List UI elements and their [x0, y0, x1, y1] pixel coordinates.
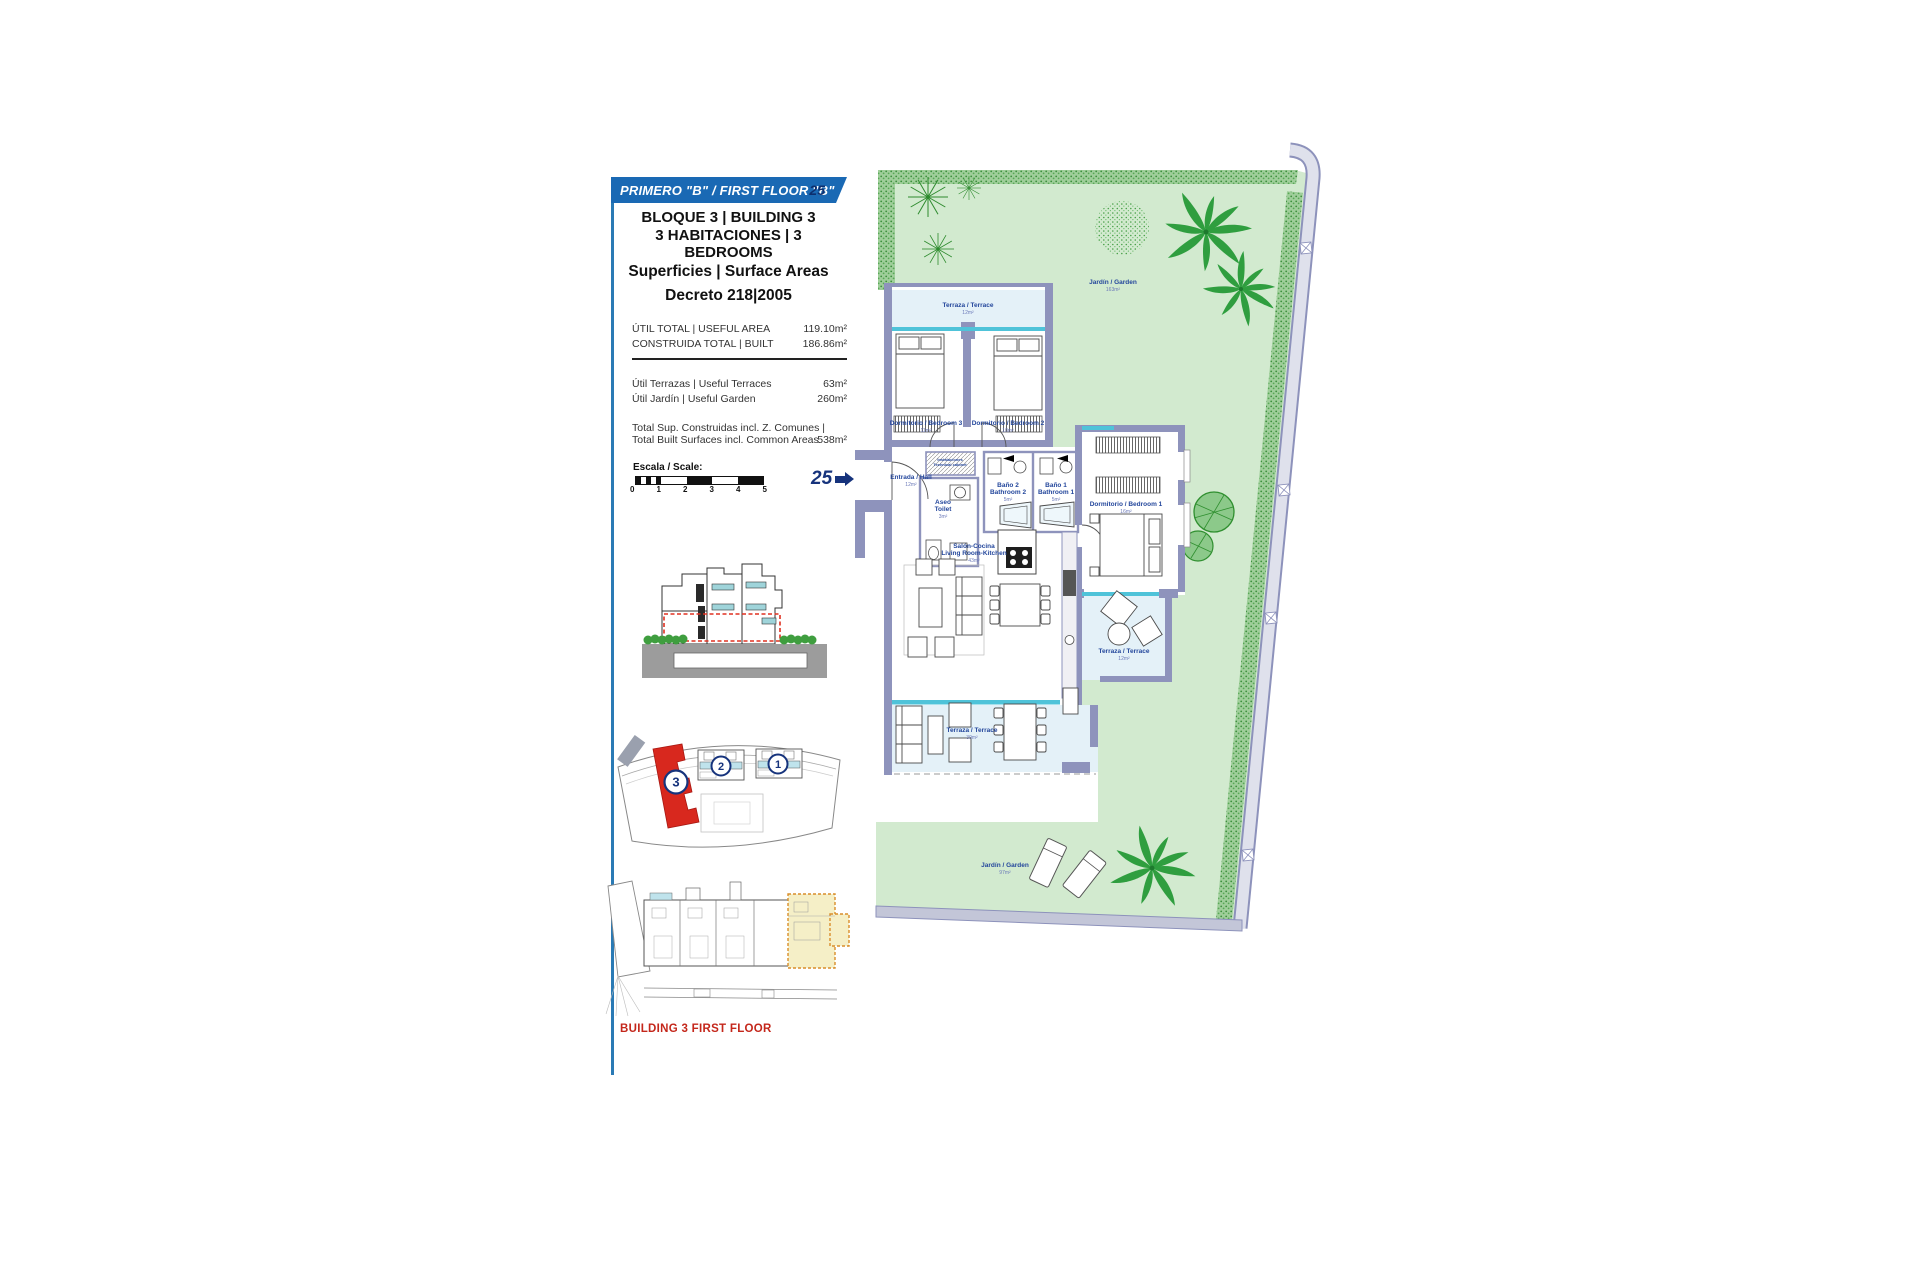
room-label: Dormitorio / Bedroom 2	[972, 420, 1045, 427]
total-label-line1: Total Sup. Construidas incl. Z. Comunes …	[632, 422, 847, 434]
building-section-drawing	[612, 556, 837, 696]
room-label: Jardín / Garden	[981, 862, 1029, 869]
table-row: CONSTRUIDA TOTAL | BUILT 186.86m²	[632, 337, 847, 352]
building-1-number: 1	[775, 759, 781, 771]
svg-text:43m²: 43m²	[968, 558, 980, 564]
entrance-number: 25	[811, 468, 832, 490]
sink-icon	[1065, 636, 1074, 645]
room-label: Terraza / Terrace	[1098, 648, 1149, 655]
svg-text:5m²: 5m²	[1004, 497, 1013, 503]
scale-bar	[635, 476, 764, 485]
entrance-marker: 25	[811, 468, 854, 490]
total-row: Total Sup. Construidas incl. Z. Comunes …	[632, 422, 847, 446]
decree-line: Decreto 218|2005	[612, 287, 845, 305]
plan-title: PRIMERO "B" / FIRST FLOOR "B"	[611, 183, 835, 198]
floorplan-sheet: PRIMERO "B" / FIRST FLOOR "B" 25 BLOQUE …	[0, 0, 1920, 1280]
fence-post-icon	[1300, 242, 1312, 254]
main-floor-plan: Terraza / Terrace 12m² Dormitorio / Bedr…	[855, 140, 1345, 1065]
building-line: BLOQUE 3 | BUILDING 3	[612, 209, 845, 226]
fence-post-icon	[1265, 612, 1277, 624]
area-value: 260m²	[817, 392, 847, 407]
svg-text:10m²: 10m²	[1002, 428, 1014, 434]
room-label: Dormitorio / Bedroom 1	[1090, 501, 1163, 508]
stove-icon	[1006, 547, 1032, 568]
area-value: 63m²	[823, 377, 847, 392]
svg-text:39m²: 39m²	[966, 735, 978, 741]
room-label: Terraza / Terrace	[946, 727, 997, 734]
scale-label: Escala / Scale:	[633, 462, 703, 473]
road	[644, 988, 837, 999]
toilet-icon	[988, 458, 1001, 474]
fence-post-icon	[1242, 849, 1254, 861]
keyplan-caption: BUILDING 3 FIRST FLOOR	[620, 1023, 772, 1035]
table-row: Útil Jardín | Useful Garden 260m²	[632, 392, 847, 407]
site-plan: 3 2 1	[606, 722, 856, 862]
room-label: Aseo	[935, 499, 951, 506]
area-value: 186.86m²	[803, 337, 847, 352]
areas-table-primary: ÚTIL TOTAL | USEFUL AREA 119.10m² CONSTR…	[632, 322, 847, 352]
key-plan	[602, 876, 857, 1026]
round-tree-icon	[1194, 492, 1234, 532]
room-label: Entrada / Hall	[890, 474, 932, 481]
building-2-number: 2	[718, 761, 724, 773]
svg-text:11m²: 11m²	[920, 428, 931, 434]
surface-areas-title: Superficies | Surface Areas	[612, 263, 845, 281]
area-label: CONSTRUIDA TOTAL | BUILT	[632, 337, 774, 352]
sink-icon	[1014, 461, 1026, 473]
room-label: Terraza / Terrace	[942, 302, 993, 309]
svg-text:12m²: 12m²	[962, 310, 974, 316]
sink-icon	[1060, 461, 1072, 473]
room-label: Baño 2	[997, 482, 1019, 489]
area-label: Útil Jardín | Useful Garden	[632, 392, 756, 407]
toilet-icon	[1040, 458, 1053, 474]
scale-ticks: 0 1 2 3 4 5	[630, 485, 767, 494]
shower-icon	[1040, 502, 1074, 527]
total-label-line2: Total Built Surfaces incl. Common Areas	[632, 434, 847, 446]
room-label: Jardín / Garden	[1089, 279, 1137, 286]
room-label: Salón-Cocina	[953, 543, 995, 550]
svg-text:Living Room-Kitchen: Living Room-Kitchen	[941, 550, 1006, 557]
highlighted-unit	[788, 894, 849, 968]
svg-text:16m²: 16m²	[1120, 509, 1132, 515]
bush-icon	[1095, 201, 1149, 255]
entrance-arrow-icon	[835, 472, 854, 486]
bedrooms-line: 3 HABITACIONES | 3 BEDROOMS	[612, 227, 845, 261]
table-row: Útil Terrazas | Useful Terraces 63m²	[632, 377, 847, 392]
svg-text:Bathroom 1: Bathroom 1	[1038, 489, 1075, 496]
bed	[896, 334, 944, 408]
svg-text:12m²: 12m²	[1118, 656, 1130, 662]
area-label: ÚTIL TOTAL | USEFUL AREA	[632, 322, 770, 337]
area-value: 119.10m²	[803, 322, 847, 337]
svg-text:Bathroom 2: Bathroom 2	[990, 489, 1027, 496]
svg-text:Technical cabinet: Technical cabinet	[933, 462, 967, 467]
unit-number: 25	[809, 182, 825, 198]
divider	[632, 358, 847, 360]
hedge-right	[780, 635, 817, 645]
svg-text:97m²: 97m²	[999, 870, 1011, 876]
bed	[994, 336, 1042, 410]
room-label: Baño 1	[1045, 482, 1067, 489]
svg-text:163m²: 163m²	[1106, 287, 1121, 293]
room-label: Dormitorio / Bedroom 3	[890, 420, 963, 427]
fence-post-icon	[1278, 484, 1290, 496]
table-row: ÚTIL TOTAL | USEFUL AREA 119.10m²	[632, 322, 847, 337]
svg-text:3m²: 3m²	[939, 514, 948, 520]
svg-text:5m²: 5m²	[1052, 497, 1061, 503]
areas-table-secondary: Útil Terrazas | Useful Terraces 63m² Úti…	[632, 377, 847, 407]
building-3-number: 3	[672, 775, 679, 790]
area-label: Útil Terrazas | Useful Terraces	[632, 377, 771, 392]
plan-title-banner: PRIMERO "B" / FIRST FLOOR "B" 25	[611, 177, 847, 203]
building-outline	[644, 882, 796, 966]
toilet-icon	[926, 540, 941, 560]
total-value: 538m²	[817, 434, 847, 446]
svg-text:Toilet: Toilet	[935, 506, 953, 513]
bedroom1-furniture	[1090, 514, 1162, 576]
appliance-icon	[1063, 570, 1076, 596]
svg-text:12m²: 12m²	[905, 482, 917, 488]
